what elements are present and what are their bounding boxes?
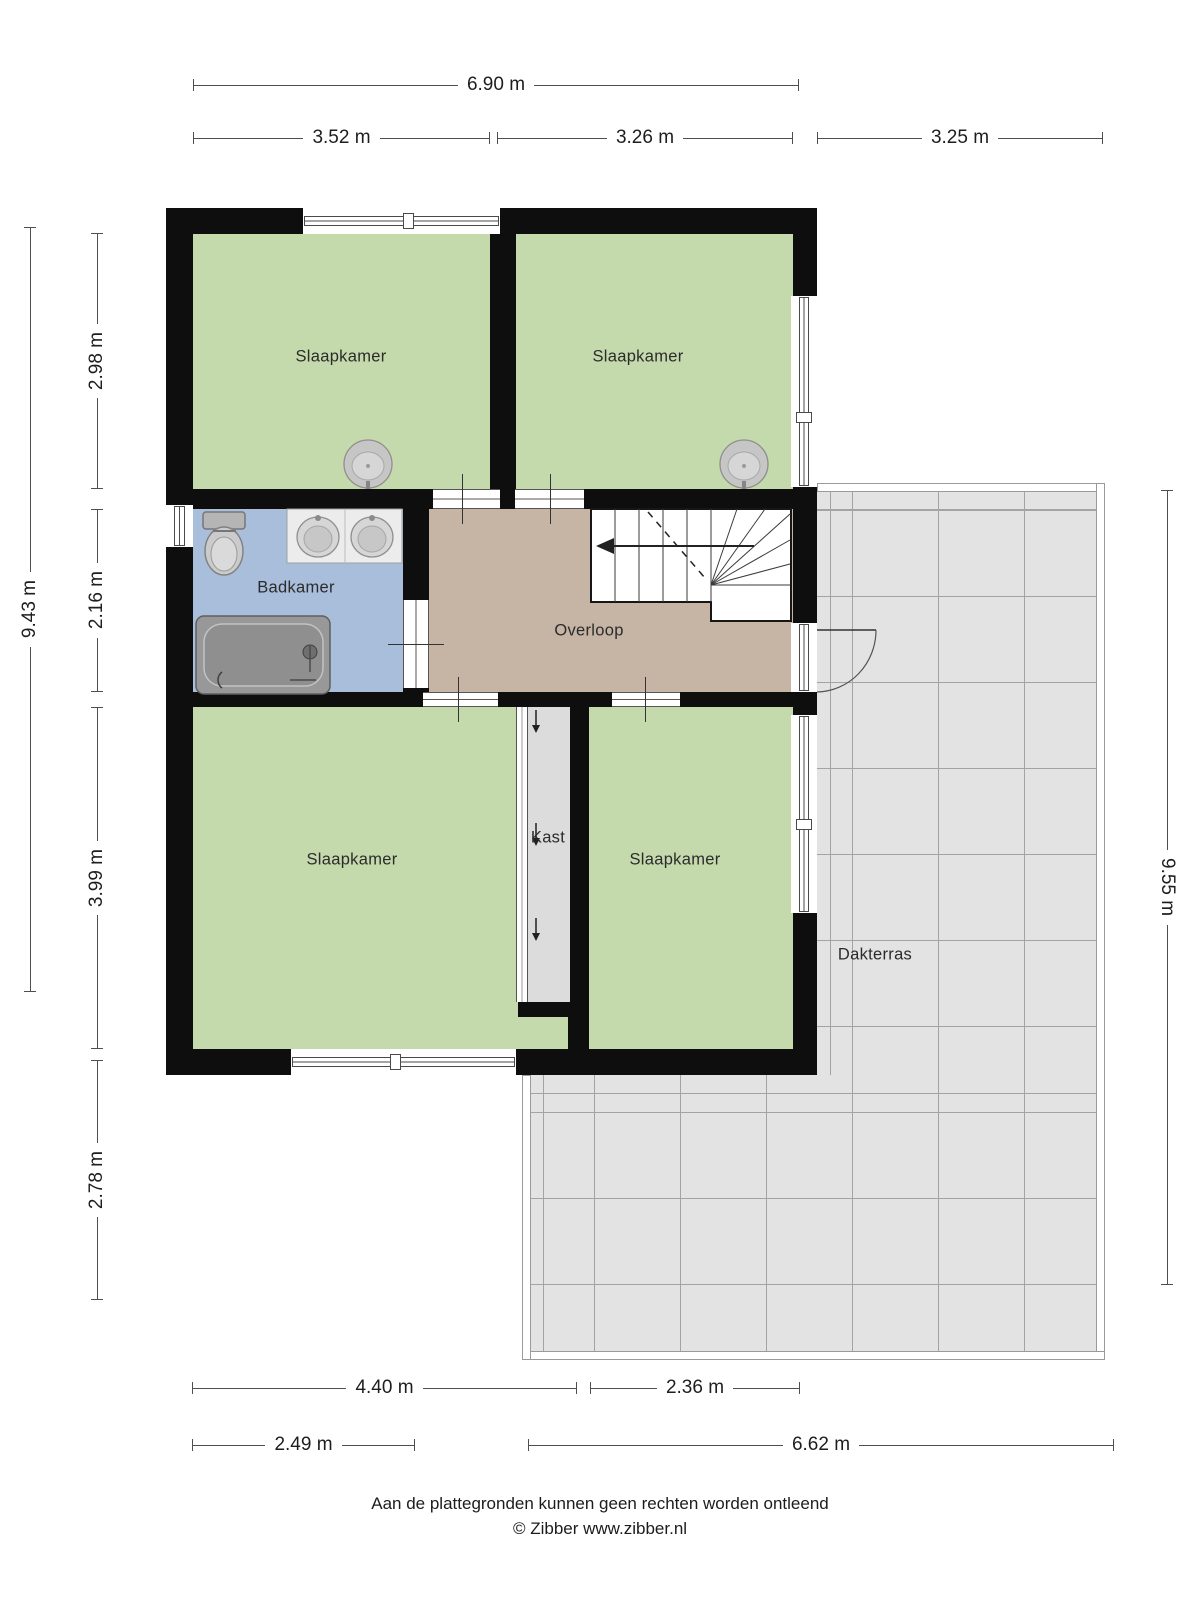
room-label-bedroom-top-right: Slaapkamer — [592, 348, 683, 367]
sink-icon — [720, 440, 768, 489]
room-label-bedroom-bottom-right: Slaapkamer — [629, 851, 720, 870]
toilet-icon — [203, 512, 245, 575]
dimension-bottom-seg1: 4.40 m — [192, 1380, 577, 1396]
dimension-left-seg2: 2.16 m — [89, 509, 105, 692]
dimension-bottom-seg3: 2.49 m — [192, 1437, 415, 1453]
staircase-icon — [591, 509, 791, 621]
room-label-roof-terrace: Dakterras — [838, 946, 912, 965]
credit-text: © Zibber www.zibber.nl — [0, 1519, 1200, 1539]
dimension-bottom-seg4: 6.62 m — [528, 1437, 1114, 1453]
fixtures-overlay — [0, 0, 1200, 1600]
dimension-top-total: 6.90 m — [193, 77, 799, 93]
slope-arrow-icon — [532, 710, 540, 941]
room-label-bedroom-bottom-left: Slaapkamer — [306, 851, 397, 870]
room-label-closet: Kast — [531, 829, 565, 848]
room-label-landing: Overloop — [554, 622, 623, 641]
room-label-bedroom-top-left: Slaapkamer — [295, 348, 386, 367]
dimension-right-total: 9.55 m — [1159, 490, 1175, 1285]
dimension-left-seg1: 2.98 m — [89, 233, 105, 489]
dimension-left-total: 9.43 m — [22, 227, 38, 992]
disclaimer-text: Aan de plattegronden kunnen geen rechten… — [0, 1494, 1200, 1514]
dimension-top-mid: 3.26 m — [497, 130, 793, 146]
door-swing-icon — [817, 630, 876, 692]
dimension-top-right: 3.25 m — [817, 130, 1103, 146]
dimension-bottom-seg2: 2.36 m — [590, 1380, 800, 1396]
sink-icon — [344, 440, 392, 489]
bathtub-icon — [196, 616, 330, 694]
dimension-left-seg4: 2.78 m — [89, 1060, 105, 1300]
dimension-top-left: 3.52 m — [193, 130, 490, 146]
dimension-left-seg3: 3.99 m — [89, 707, 105, 1049]
room-label-bathroom: Badkamer — [257, 579, 335, 598]
double-sink-icon — [287, 509, 402, 563]
floorplan-canvas: Slaapkamer Slaapkamer Badkamer Overloop … — [0, 0, 1200, 1600]
